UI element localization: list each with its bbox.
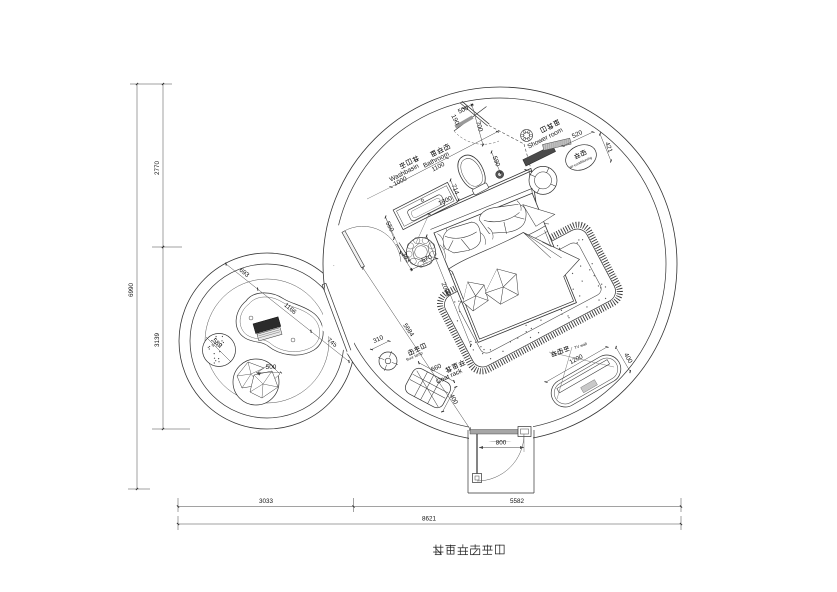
svg-text:3033: 3033 [259, 498, 274, 505]
svg-text:6990: 6990 [128, 283, 135, 298]
svg-text:3139: 3139 [154, 333, 161, 348]
svg-text:5582: 5582 [510, 498, 525, 505]
svg-text:8621: 8621 [422, 516, 437, 523]
svg-text:500: 500 [266, 364, 277, 371]
svg-text:800: 800 [496, 440, 507, 447]
svg-text:2770: 2770 [154, 161, 161, 176]
